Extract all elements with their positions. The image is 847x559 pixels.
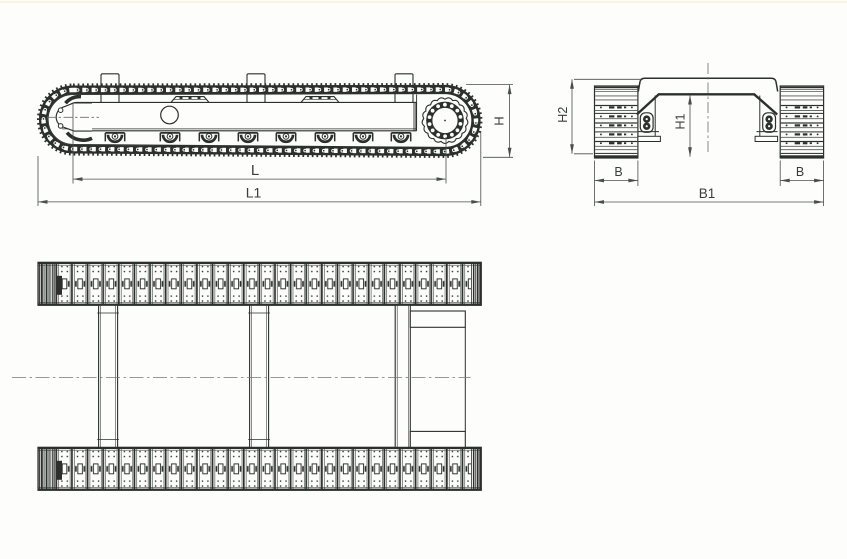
svg-text:L: L xyxy=(251,162,259,179)
svg-text:H2: H2 xyxy=(556,107,570,123)
svg-text:H: H xyxy=(492,116,507,125)
svg-text:H1: H1 xyxy=(674,113,688,129)
svg-text:L1: L1 xyxy=(246,185,262,201)
svg-text:B: B xyxy=(796,165,804,179)
svg-text:B1: B1 xyxy=(699,186,716,201)
svg-text:B: B xyxy=(614,165,622,179)
